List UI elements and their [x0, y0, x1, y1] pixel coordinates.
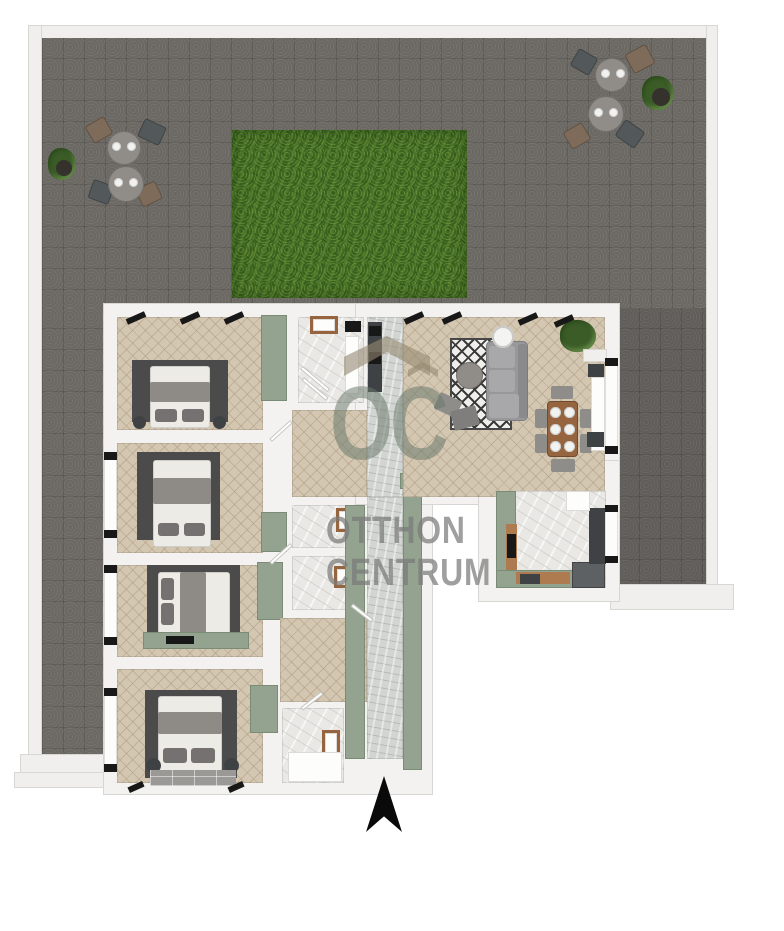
dinner-plate [564, 441, 575, 452]
window [104, 688, 117, 772]
wardrobe [257, 562, 283, 620]
dining-chair [551, 459, 575, 472]
window [605, 505, 618, 563]
wardrobe [261, 512, 287, 552]
watermark-line1: OTTHON [326, 512, 466, 550]
sofa-cushion [489, 370, 515, 392]
bed-pillow [163, 748, 187, 763]
watermark-logo-text: OC [330, 372, 445, 476]
dinner-plate [550, 424, 561, 435]
dresser [143, 632, 249, 649]
hall-appliance [369, 326, 381, 336]
terrace-door-threshold [583, 349, 607, 362]
kitchen-alcove [566, 491, 590, 511]
bed-pillow [155, 409, 177, 422]
bed-blanket [180, 572, 206, 638]
plant-pot [652, 88, 670, 106]
terrace-wall-left [28, 25, 42, 762]
window-frame [104, 688, 117, 696]
window [104, 565, 117, 645]
kitchen-appliance [520, 574, 540, 584]
grass-patch [232, 130, 467, 298]
kitchen-tall-unit [589, 508, 606, 564]
window-frame [104, 764, 117, 772]
window-frame [104, 530, 117, 538]
floor-plan-render: OC OTTHON CENTRUM [0, 0, 784, 931]
bedside-pouf [133, 416, 146, 429]
window-frame [605, 556, 618, 563]
bed-pillow [158, 523, 179, 536]
terrace-step-bottom-left [20, 754, 108, 774]
window-frame [104, 565, 117, 573]
dinner-plate [564, 407, 575, 418]
wardrobe [261, 315, 287, 401]
media-unit [587, 432, 604, 447]
indoor-plant [560, 320, 596, 352]
window [104, 452, 117, 538]
bed-pillow [161, 578, 174, 600]
terrace-paving-left [42, 308, 106, 758]
bed-pillow [182, 409, 204, 422]
window-frame [605, 446, 618, 454]
bed-blanket [153, 478, 211, 504]
media-unit [588, 364, 604, 377]
bed-pillow [191, 748, 215, 763]
terrace-step-bottom-right [610, 584, 734, 610]
coffee-table [456, 362, 483, 389]
wardrobe [250, 685, 278, 733]
table-plate [609, 108, 618, 117]
terrace-door [605, 358, 618, 454]
cooktop [507, 534, 516, 558]
table-plate [129, 178, 138, 187]
dining-chair [551, 386, 573, 399]
bed-blanket [150, 382, 210, 402]
washbasin [325, 733, 337, 753]
terrace-paving-right [618, 308, 706, 586]
bathtub [288, 752, 342, 782]
toilet [345, 321, 361, 332]
window-frame [104, 452, 117, 460]
bed-pillow [161, 603, 174, 625]
bed-pillow [184, 523, 205, 536]
table-plate [112, 142, 121, 151]
dining-chair [535, 409, 547, 428]
window-frame [605, 505, 618, 512]
fridge [572, 562, 605, 588]
table-plate [127, 142, 136, 151]
watermark-line2: CENTRUM [326, 554, 491, 592]
bedside-pouf [213, 416, 226, 429]
table-plate [594, 108, 603, 117]
terrace-wall-top [28, 25, 718, 39]
plant-pot [56, 160, 72, 176]
dinner-plate [564, 424, 575, 435]
table-plate [616, 69, 625, 78]
dinner-plate [550, 441, 561, 452]
dresser-item [166, 636, 194, 644]
tile-rug [150, 770, 236, 786]
dining-chair [535, 434, 547, 453]
bed-blanket [158, 712, 222, 734]
table-plate [114, 178, 123, 187]
floor-lamp [492, 326, 514, 348]
sofa-chaise [489, 394, 519, 418]
window-frame [605, 358, 618, 366]
sofa-back [518, 344, 527, 418]
table-plate [601, 69, 610, 78]
sofa-cushion [489, 346, 515, 368]
washbasin [313, 319, 335, 331]
terrace-wall-right [706, 25, 718, 592]
window-frame [104, 637, 117, 645]
dinner-plate [550, 407, 561, 418]
terrace-step-bottom-left-2 [14, 772, 110, 788]
